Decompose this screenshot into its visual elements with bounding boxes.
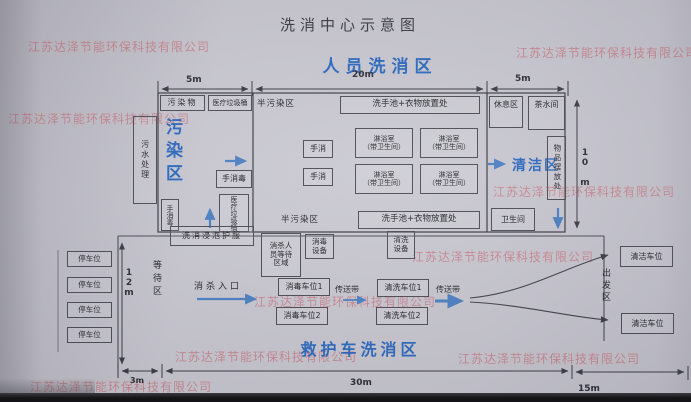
room-medical-waste-bin: 医疗垃圾桶	[208, 95, 252, 111]
dim-label: 12m	[124, 268, 134, 298]
room-shower: 淋浴室 （带卫生间）	[420, 164, 478, 194]
parking-spot: 停车位	[67, 277, 112, 293]
zone-semi-polluted-label: 半污染区	[281, 213, 319, 225]
dim-label: 5m	[186, 75, 202, 85]
room-wash-station: 洗手池+衣物放置处	[340, 96, 480, 114]
wash-spot-2: 清洗车位2	[376, 307, 428, 325]
wash-spot-1: 清洗车位1	[377, 279, 429, 297]
ambulance-area-heading: 救护车洗消区	[268, 336, 453, 360]
shower-label: 淋浴室	[439, 135, 460, 143]
photo-dark-edge	[0, 393, 691, 402]
conveyor-label: 传送带	[335, 284, 359, 295]
parking-spot: 停车位	[67, 302, 112, 318]
room-storage: 物品摆放处	[547, 136, 566, 200]
room-toilet: 卫生间	[491, 208, 535, 231]
shower-note: （带卫生间）	[428, 179, 470, 187]
watermark: 江苏达泽节能环保科技有限公司	[412, 248, 594, 265]
shower-note: （带卫生间）	[428, 143, 470, 151]
room-shower: 淋浴室 （带卫生间）	[355, 164, 413, 194]
departure-zone-label: 出发区	[599, 268, 612, 304]
room-soak-suits: 洗消浸泡护服	[170, 226, 254, 246]
clean-spot-1: 清洁车位	[620, 246, 673, 267]
conveyor-label: 传送带	[436, 284, 460, 295]
dim-label: 10 m	[580, 148, 590, 188]
shower-label: 淋浴室	[374, 135, 395, 143]
parking-spot: 停车位	[67, 327, 112, 343]
watermark: 江苏达泽节能环保科技有限公司	[28, 38, 210, 55]
room-staff-waiting: 消杀人 员等待 区域	[261, 233, 301, 277]
zone-polluted-label: 污染区	[160, 118, 185, 187]
scanned-diagram-page: 江苏达泽节能环保科技有限公司 江苏达泽节能环保科技有限公司 江苏达泽节能环保科技…	[0, 0, 691, 402]
watermark: 江苏达泽节能环保科技有限公司	[516, 44, 691, 61]
room-hand-wash: 手消	[303, 168, 333, 186]
room-disinfect-equipment: 消毒 设备	[305, 234, 334, 259]
room-tea-room: 茶水间	[528, 96, 565, 130]
dim-label: 5m	[515, 74, 531, 84]
shower-note: （带卫生间）	[363, 143, 405, 151]
room-rest-area: 休息区	[489, 96, 523, 128]
room-pollutants: 污染物	[160, 95, 205, 111]
disinfect-spot-2: 消毒车位2	[276, 307, 328, 325]
room-shower: 淋浴室 （带卫生间）	[355, 128, 413, 158]
room-wash-station: 洗手池+衣物放置处	[358, 211, 480, 229]
room-sewage-treatment: 污水处理	[133, 116, 157, 204]
personnel-area-heading: 人员洗消区	[295, 52, 465, 77]
dim-label: 30m	[350, 378, 372, 388]
zone-semi-polluted-label: 半污染区	[257, 97, 295, 109]
shower-label: 淋浴室	[374, 171, 395, 179]
room-hand-wash: 手消	[303, 140, 333, 158]
clean-spot-2: 清洁车位	[621, 313, 674, 334]
page-title: 洗消中心示意图	[250, 14, 450, 35]
entrance-label: 消杀入口	[194, 279, 242, 292]
shower-note: （带卫生间）	[363, 179, 405, 187]
room-hand-disinfect: 手消毒	[216, 170, 252, 188]
exit-fork-arrows	[470, 255, 608, 320]
shower-label: 淋浴室	[439, 171, 460, 179]
dim-label: 20m	[352, 70, 374, 80]
disinfect-spot-1: 消毒车位1	[278, 278, 330, 296]
dim-label: 3m	[130, 376, 144, 385]
waiting-zone-label: 等待区	[150, 260, 163, 299]
watermark: 江苏达泽节能环保科技有限公司	[458, 350, 640, 367]
room-wash-equipment: 清洗 设备	[387, 231, 415, 259]
room-shower: 淋浴室 （带卫生间）	[420, 128, 478, 158]
parking-spot: 停车位	[67, 251, 112, 267]
